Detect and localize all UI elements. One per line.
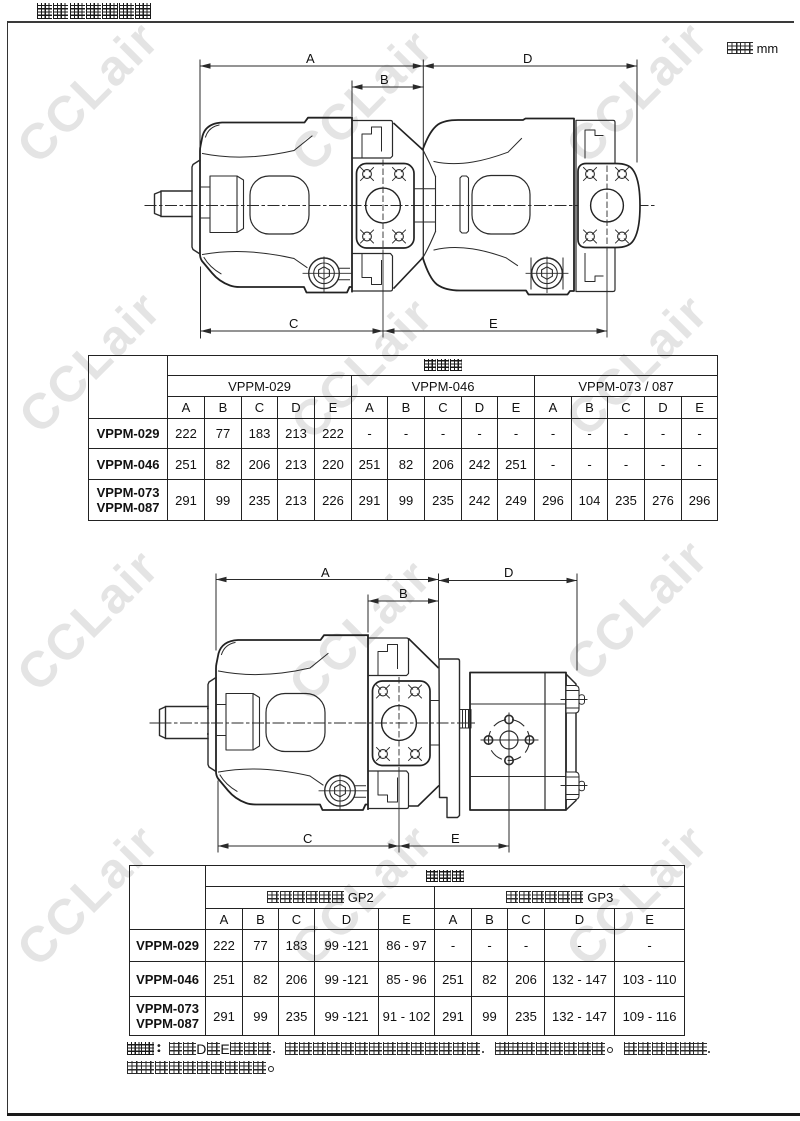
svg-text:D: D: [523, 51, 532, 66]
svg-text:D: D: [504, 565, 513, 580]
svg-text:C: C: [303, 831, 312, 846]
svg-text:E: E: [489, 316, 498, 331]
svg-text:A: A: [306, 51, 315, 66]
svg-text:B: B: [399, 586, 408, 601]
svg-text:B: B: [380, 72, 389, 87]
svg-text:C: C: [289, 316, 298, 331]
svg-text:A: A: [321, 565, 330, 580]
svg-text:E: E: [451, 831, 460, 846]
